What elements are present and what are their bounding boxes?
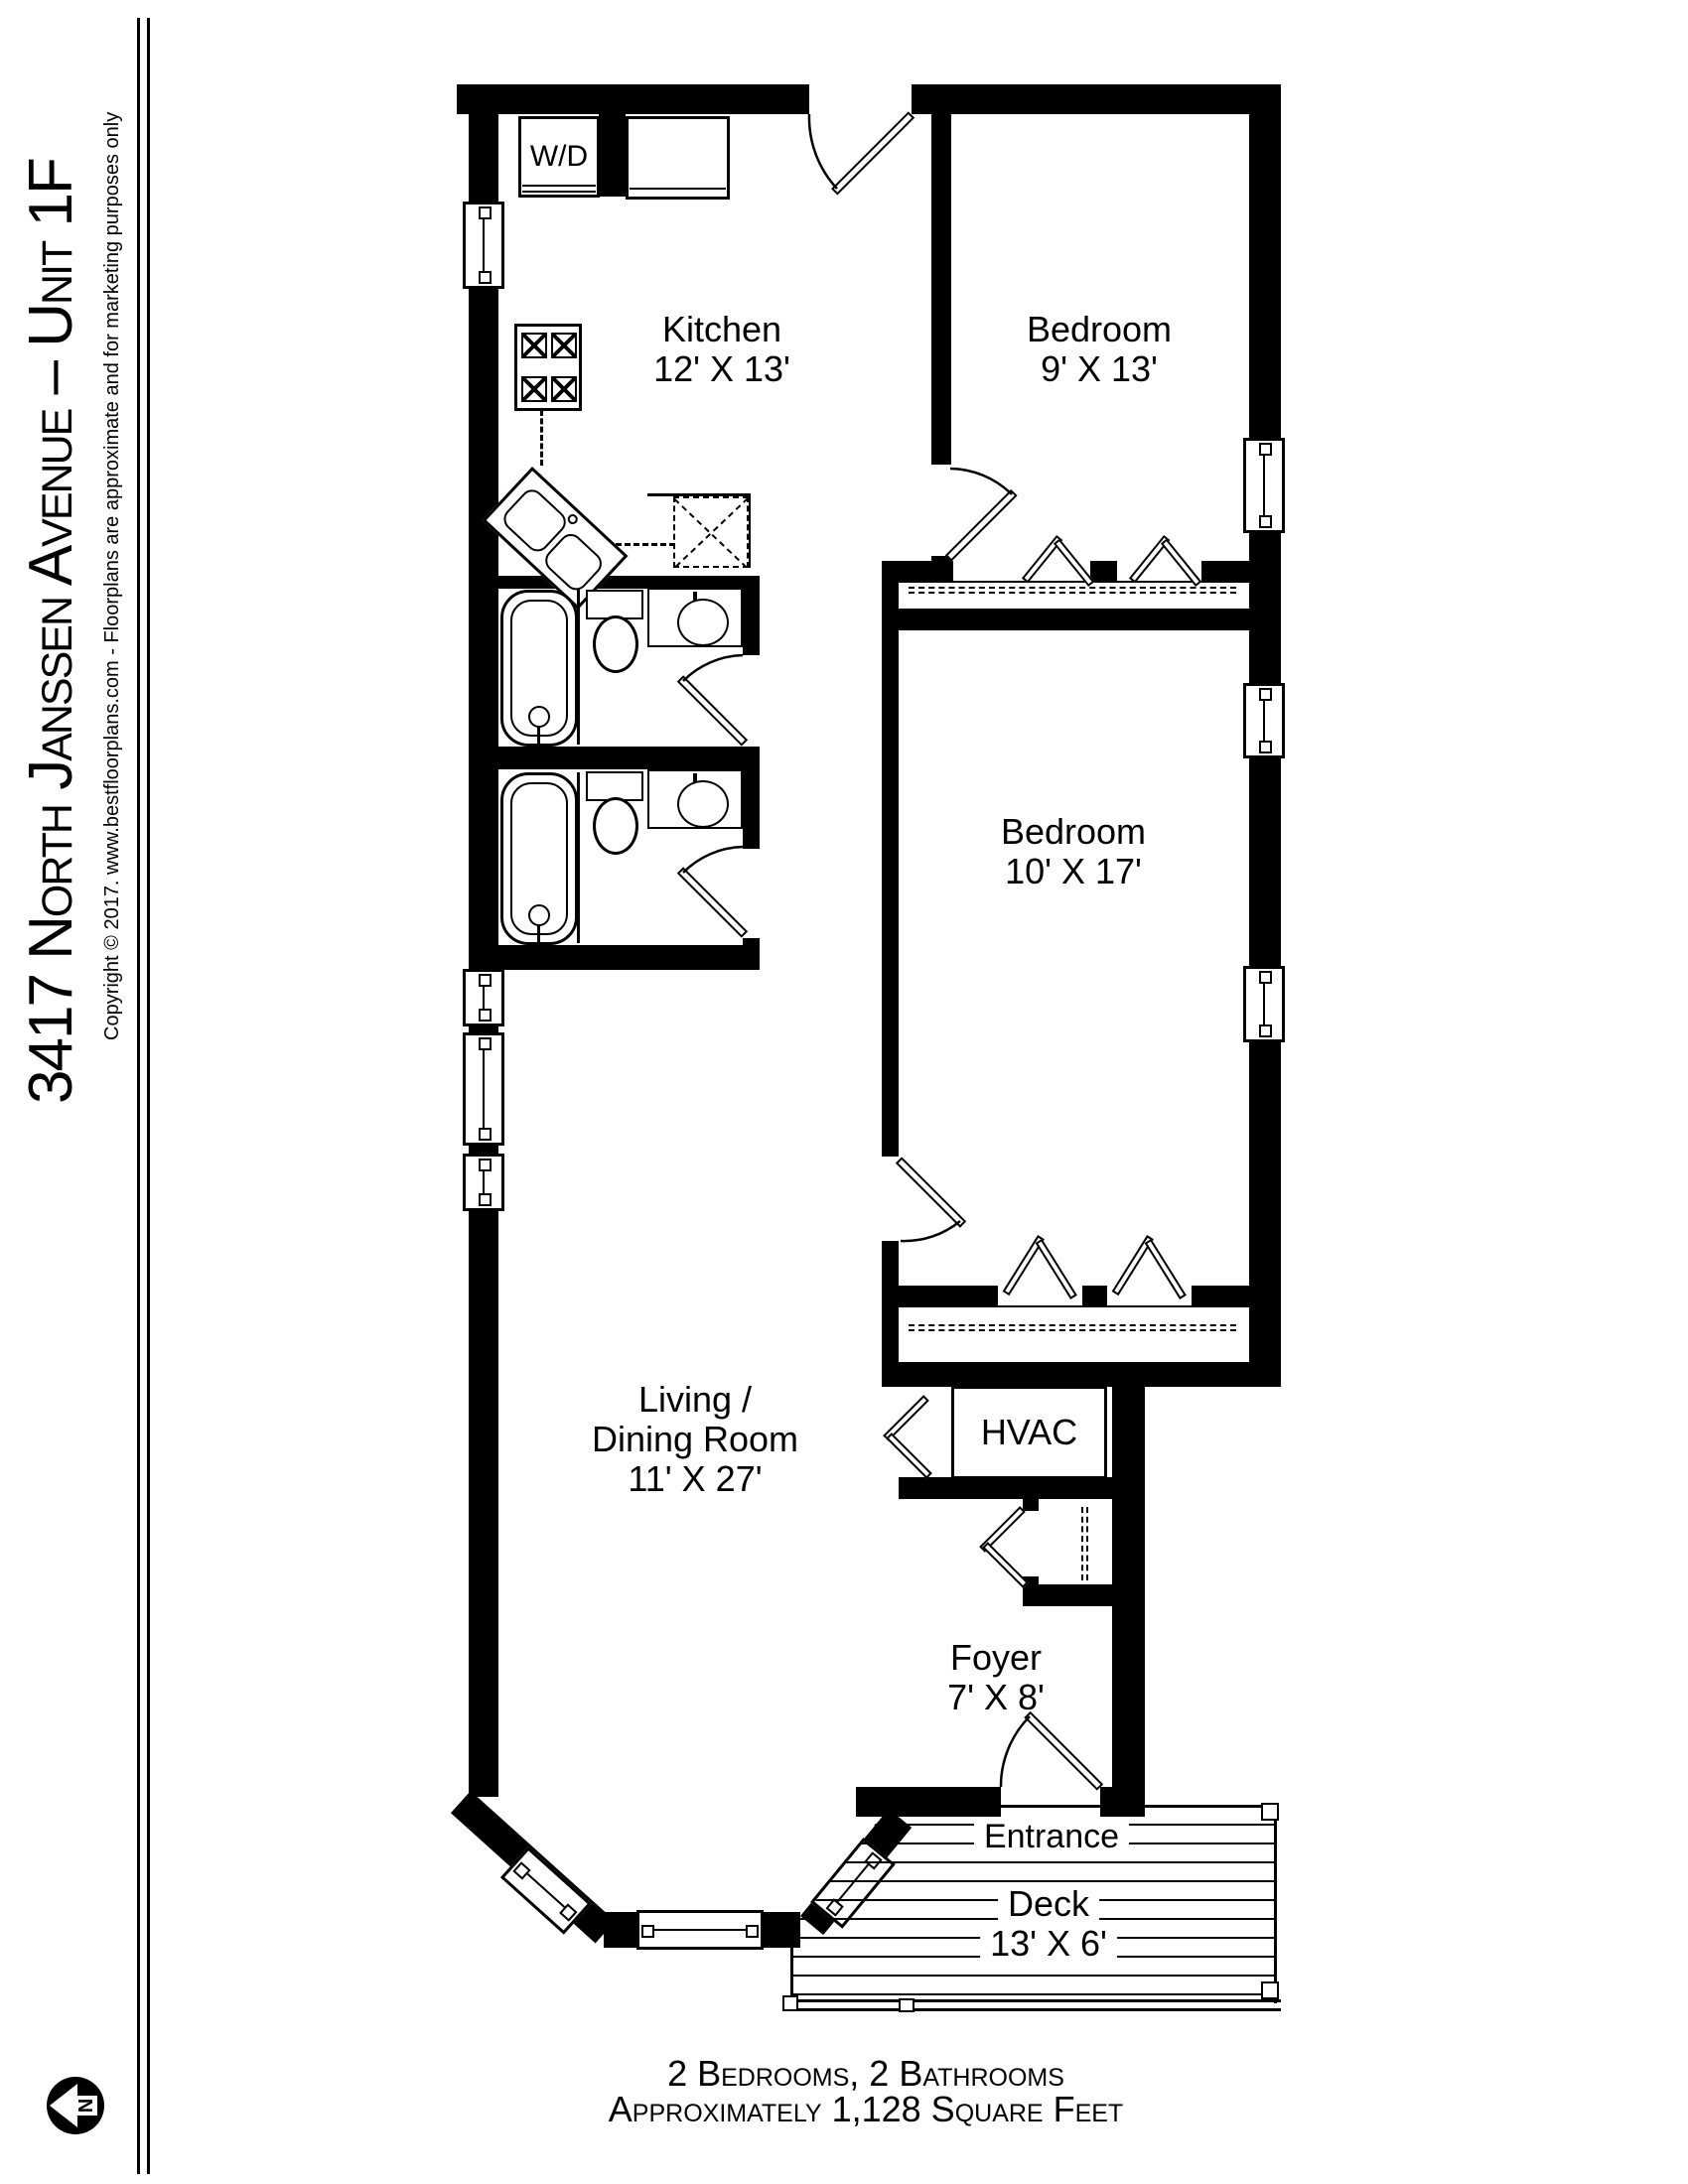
footer-summary-line2: Approximately 1,128 Square Feet [609, 2089, 1123, 2130]
deck-dims: 13' X 6' [980, 1924, 1117, 1964]
kitchen-name: Kitchen [662, 310, 781, 349]
living-dining-label: Living / Dining Room 11' X 27' [592, 1380, 798, 1499]
living-dims: 11' X 27' [628, 1459, 762, 1499]
bedroom2-dims: 10' X 17' [1005, 852, 1142, 891]
deck-label: Deck 13' X 6' [980, 1884, 1117, 1964]
bedroom2-door-arc [901, 1221, 960, 1241]
foyer-label: Foyer 7' X 8' [947, 1638, 1045, 1717]
deck-top-edge [899, 1805, 1277, 1808]
deck-right-edge [1274, 1805, 1277, 2003]
floorplan-page: 3417 North Janssen Avenue – Unit 1F Copy… [0, 0, 1688, 2184]
deck-post-bottom-right [1261, 1981, 1279, 1999]
front-door-arc [1001, 1716, 1030, 1787]
entrance-text: Entrance [974, 1817, 1129, 1856]
living-line2: Dining Room [592, 1420, 798, 1459]
deck-post-top-right [1261, 1803, 1279, 1821]
bath2-door-arc [683, 847, 743, 873]
kitchen-label: Kitchen 12' X 13' [653, 310, 790, 389]
deck-name: Deck [998, 1884, 1099, 1924]
deck-rail-line-2 [787, 2008, 1281, 2011]
bath1-door-arc [683, 655, 743, 681]
kitchen-dims: 12' X 13' [653, 349, 790, 389]
living-line1: Living / [638, 1380, 752, 1420]
back-door-arc [809, 114, 837, 189]
bedroom2-name: Bedroom [1001, 812, 1146, 852]
door-arcs-layer [0, 0, 1688, 2184]
foyer-dims: 7' X 8' [947, 1678, 1045, 1717]
deck-left-edge [790, 1914, 793, 2003]
entrance-label: Entrance [974, 1817, 1129, 1856]
foyer-name: Foyer [950, 1638, 1042, 1678]
bedroom2-label: Bedroom 10' X 17' [1001, 812, 1146, 891]
deck-post-bottom-center [899, 1998, 914, 2012]
bedroom1-name: Bedroom [1027, 310, 1172, 349]
bedroom1-label: Bedroom 9' X 13' [1027, 310, 1172, 389]
deck-rail-line-1 [787, 1999, 1281, 2002]
bedroom1-door-arc [950, 469, 1012, 494]
bedroom1-dims: 9' X 13' [1041, 349, 1158, 389]
deck-post-bottom-left [782, 1995, 798, 2011]
